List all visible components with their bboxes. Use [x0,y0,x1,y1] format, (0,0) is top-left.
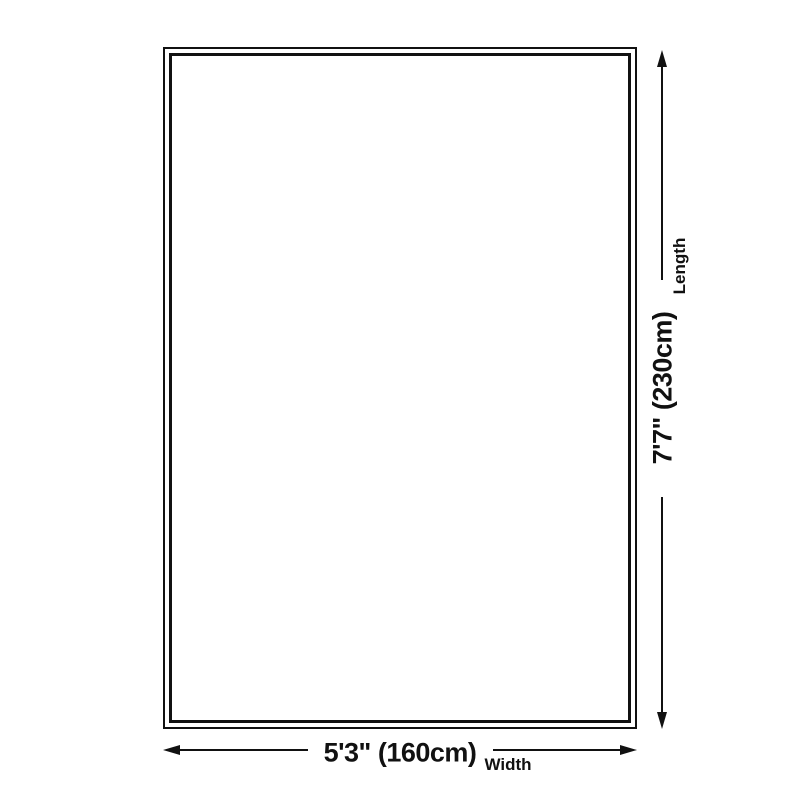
length-dimension-line-top [661,65,663,280]
width-dimension-line-left [178,749,308,751]
length-dimension-line-bottom [661,497,663,714]
width-value: 5'3" (160cm) [324,738,477,769]
product-outline-inner-border [169,53,631,723]
product-outline [163,47,637,729]
arrow-right-icon [620,745,637,755]
length-label: Length [670,238,690,295]
width-dimension-line-right [493,749,622,751]
length-value: 7'7" (230cm) [648,312,679,465]
width-label: Width [484,755,531,775]
arrow-down-icon [657,712,667,729]
product-size-diagram: 5'3" (160cm) Width Length 7'7" (230cm) [0,0,800,800]
